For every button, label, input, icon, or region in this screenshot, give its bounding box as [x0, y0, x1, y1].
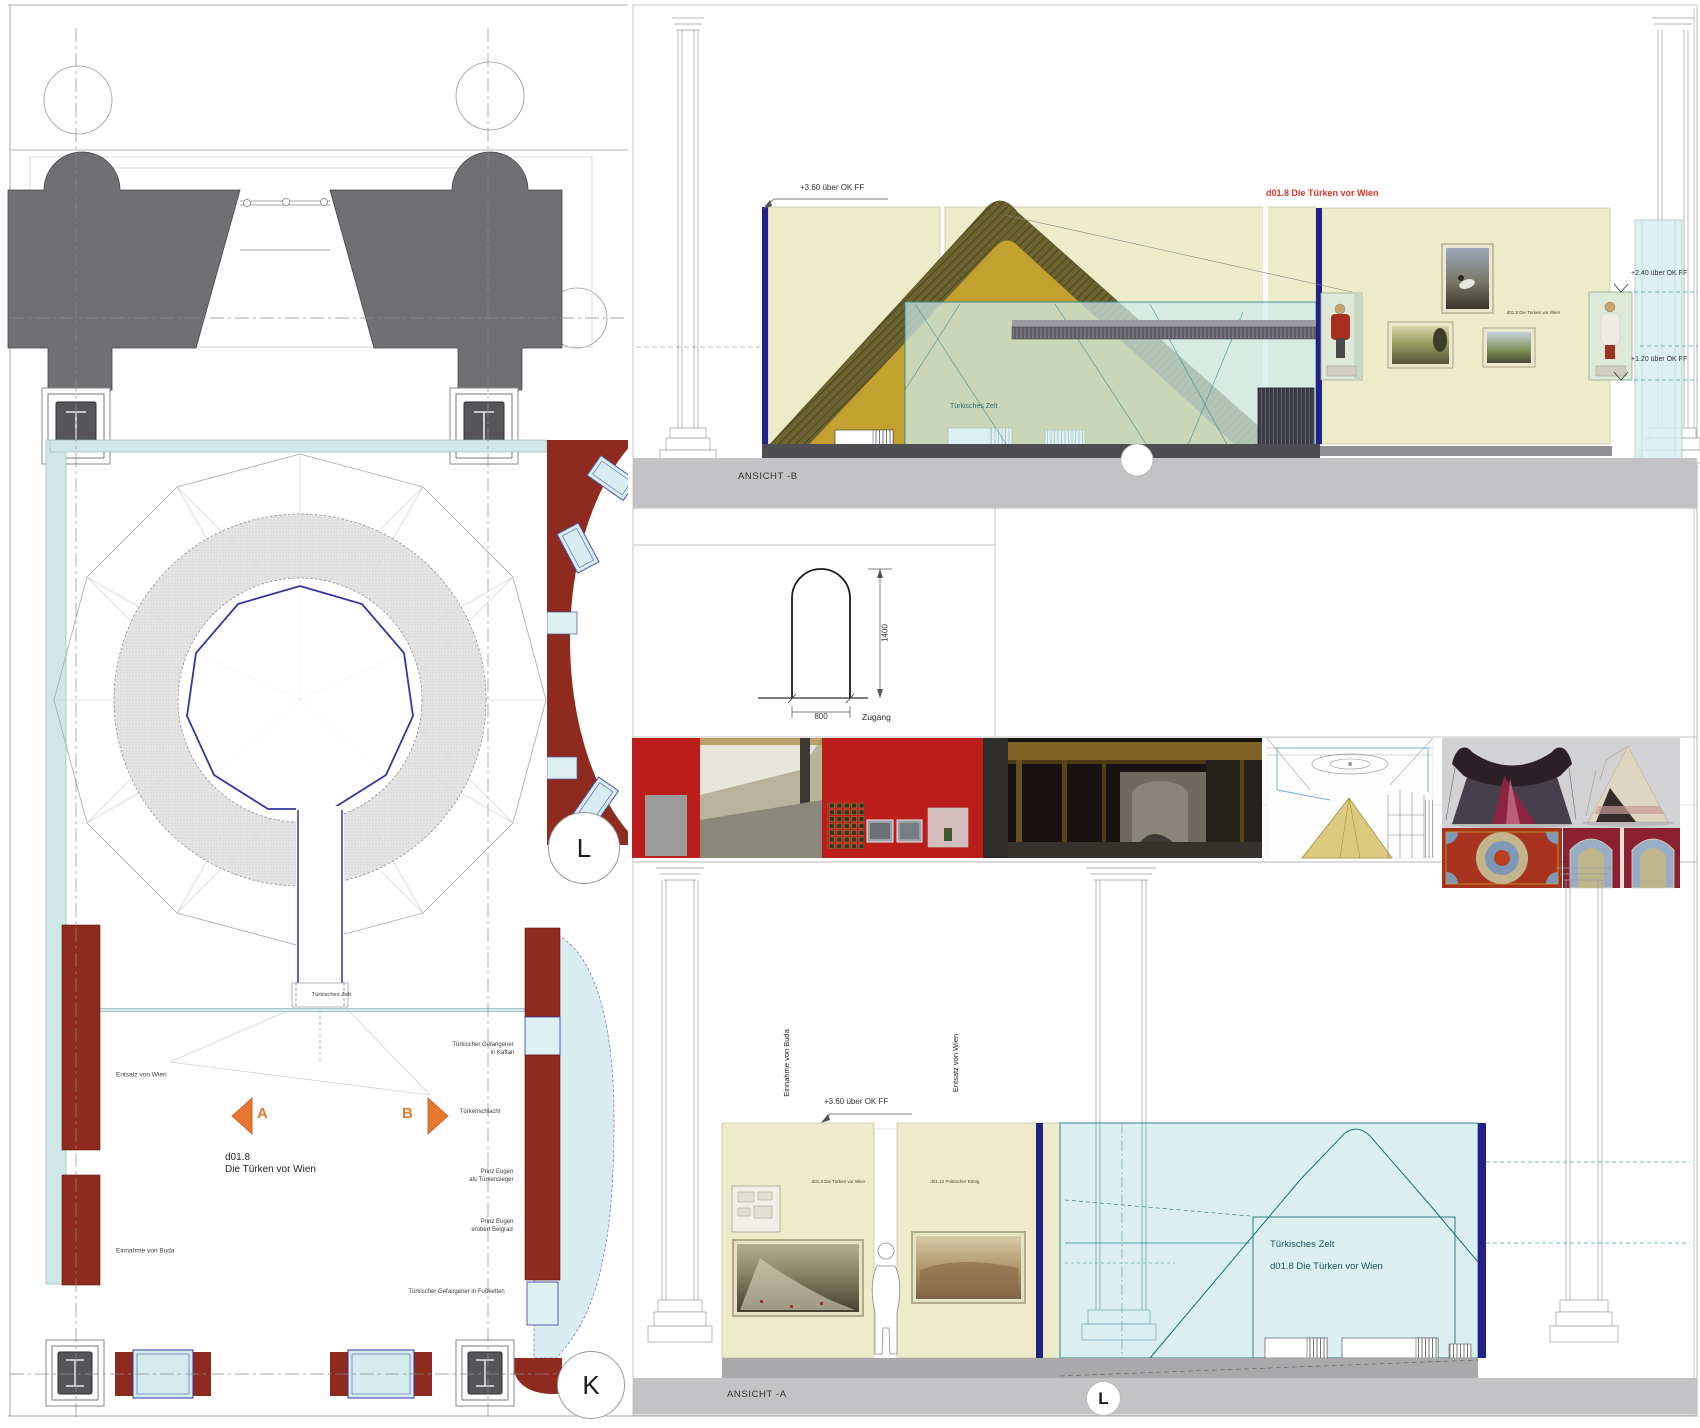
ansicht-a-dim-360: +3.60 über OK FF	[824, 1098, 888, 1107]
door-label: Zugang	[862, 713, 891, 723]
plan-zone-name: Die Türken vor Wien	[225, 1164, 316, 1175]
painting-landscape	[1388, 322, 1453, 368]
title-band	[633, 458, 1697, 508]
column-circle	[44, 66, 112, 134]
ansicht-a-title: ANSICHT -A	[727, 1390, 787, 1401]
column-base	[46, 1340, 104, 1406]
door-detail	[758, 569, 892, 718]
red-wall-right	[525, 928, 560, 1325]
navy-strip	[762, 207, 768, 452]
photo-render-dark-hall	[1008, 738, 1262, 858]
section-marker-b-label: B	[402, 1106, 413, 1123]
plan-label-belgrad-2: erobert Belgrad	[472, 1226, 513, 1233]
red-wall-segment	[62, 925, 100, 1150]
wall-mass-left	[8, 152, 240, 390]
sketch-frame	[732, 1186, 780, 1232]
column-circle	[456, 62, 524, 130]
column-base	[450, 388, 518, 464]
tent-glass-enclosure	[1060, 1123, 1478, 1358]
classical-column	[1550, 868, 1618, 1342]
drawing-canvas	[0, 0, 1700, 1428]
red-wall-corner	[512, 1358, 562, 1394]
painting-battle-buda	[733, 1240, 863, 1316]
wall-mass-right	[330, 152, 562, 390]
glass-wall-left	[46, 440, 66, 1284]
ansicht-b-dim-360: +3.60 über OK FF	[800, 184, 864, 193]
ansicht-a-glass-label-1: Türkisches Zelt	[1270, 1240, 1334, 1251]
ansicht-a-wall-b-label: d01.12 Polnischer König	[895, 1174, 1015, 1192]
plan-label-entsatz: Entsatz von Wien	[116, 1071, 167, 1078]
ansicht-b-dim-240: +2.40 über OK FF	[1631, 270, 1687, 278]
door-height-dim: 1400	[882, 624, 891, 642]
ansicht-b-wall-label: d01.8 Die Türken vor Wien	[1480, 305, 1580, 323]
section-marker-b-icon	[418, 1094, 478, 1154]
middle-section	[632, 508, 1697, 896]
exhibition-design-sheet: Türkisches Zelt Entsatz von Wien Einnahm…	[0, 0, 1700, 1428]
ansicht-a-grid-circle-l: L	[1086, 1381, 1121, 1416]
photo-carpet-medallion	[1434, 820, 1570, 896]
plan-tent-label: Türkisches Zelt	[292, 988, 348, 1006]
red-wall-segment	[62, 1175, 100, 1285]
photo-wireframe-room	[1267, 738, 1433, 858]
ansicht-a-vlabel-buda: Einnahme von Buda	[783, 1029, 791, 1097]
title-band	[633, 1378, 1697, 1414]
section-marker-a-icon	[228, 1094, 288, 1154]
door-width-dim: 800	[806, 713, 836, 722]
classical-column	[660, 18, 716, 463]
ansicht-b-zone-label: d01.8 Die Türken vor Wien	[1266, 188, 1378, 198]
reference-circle	[1121, 444, 1153, 476]
classical-column	[648, 868, 712, 1342]
photo-turkish-tents	[1442, 738, 1680, 828]
ansicht-a-wall-a-label: d01.8 Die Türken vor Wien	[778, 1174, 898, 1192]
classical-column	[1086, 868, 1156, 1123]
plan-label-sieger-2: als Türkensieger	[469, 1176, 513, 1183]
wall-opening	[547, 612, 577, 634]
plan-label-kaftan-1: Türkischer Gefangener	[453, 1041, 514, 1048]
niche-figure-white	[1589, 292, 1632, 380]
glass-wall-top	[50, 440, 547, 452]
wall-opening	[547, 757, 577, 779]
showcase-kaftan	[525, 1017, 560, 1055]
human-silhouette	[872, 1243, 900, 1354]
garderobe-block	[1258, 388, 1314, 450]
niche-figure-kaftan	[1321, 293, 1362, 380]
ansicht-b-glass-label: Türkisches Zelt	[950, 403, 997, 411]
navy-strip	[1036, 1123, 1043, 1358]
painting-landscape	[1483, 328, 1535, 367]
ansicht-b	[633, 18, 1700, 508]
plan-label-belgrad-1: Prinz Eugen	[480, 1218, 513, 1225]
ansicht-a-glass-label-2: d01.8 Die Türken vor Wien	[1270, 1262, 1383, 1273]
column-base	[456, 1340, 514, 1406]
photo-carpet-arches	[1563, 828, 1680, 888]
plan-label-fussketten: Türkischer Gefangener in Fußketten	[409, 1288, 505, 1295]
painting-equestrian	[1442, 244, 1493, 313]
beam	[1012, 320, 1316, 327]
grid-circle-k: K	[557, 1351, 625, 1419]
floor-strip	[722, 1358, 1478, 1378]
wall-panel	[1319, 208, 1610, 444]
plan-label-kaftan-2: in Kaftan	[490, 1049, 514, 1056]
ansicht-b-title: ANSICHT -B	[738, 472, 798, 483]
section-marker-a-label: A	[257, 1106, 268, 1123]
plan-label-sieger-1: Prinz Eugen	[480, 1168, 513, 1175]
photo-render-red-wall	[822, 738, 1008, 858]
plan-label-einnahme: Einnahme von Buda	[116, 1247, 175, 1254]
grid-circle-l: L	[548, 812, 620, 884]
floor-plan	[8, 5, 830, 1420]
ansicht-b-dim-120: +1.20 über OK FF	[1631, 356, 1687, 364]
showcase-fussketten	[527, 1282, 558, 1325]
painting-battle-wien	[912, 1232, 1025, 1303]
ansicht-a-vlabel-wien: Entsatz von Wien	[952, 1034, 960, 1092]
floor-strip	[762, 444, 1320, 458]
navy-strip	[1478, 1123, 1486, 1358]
photo-render-red-corridor	[632, 738, 822, 858]
